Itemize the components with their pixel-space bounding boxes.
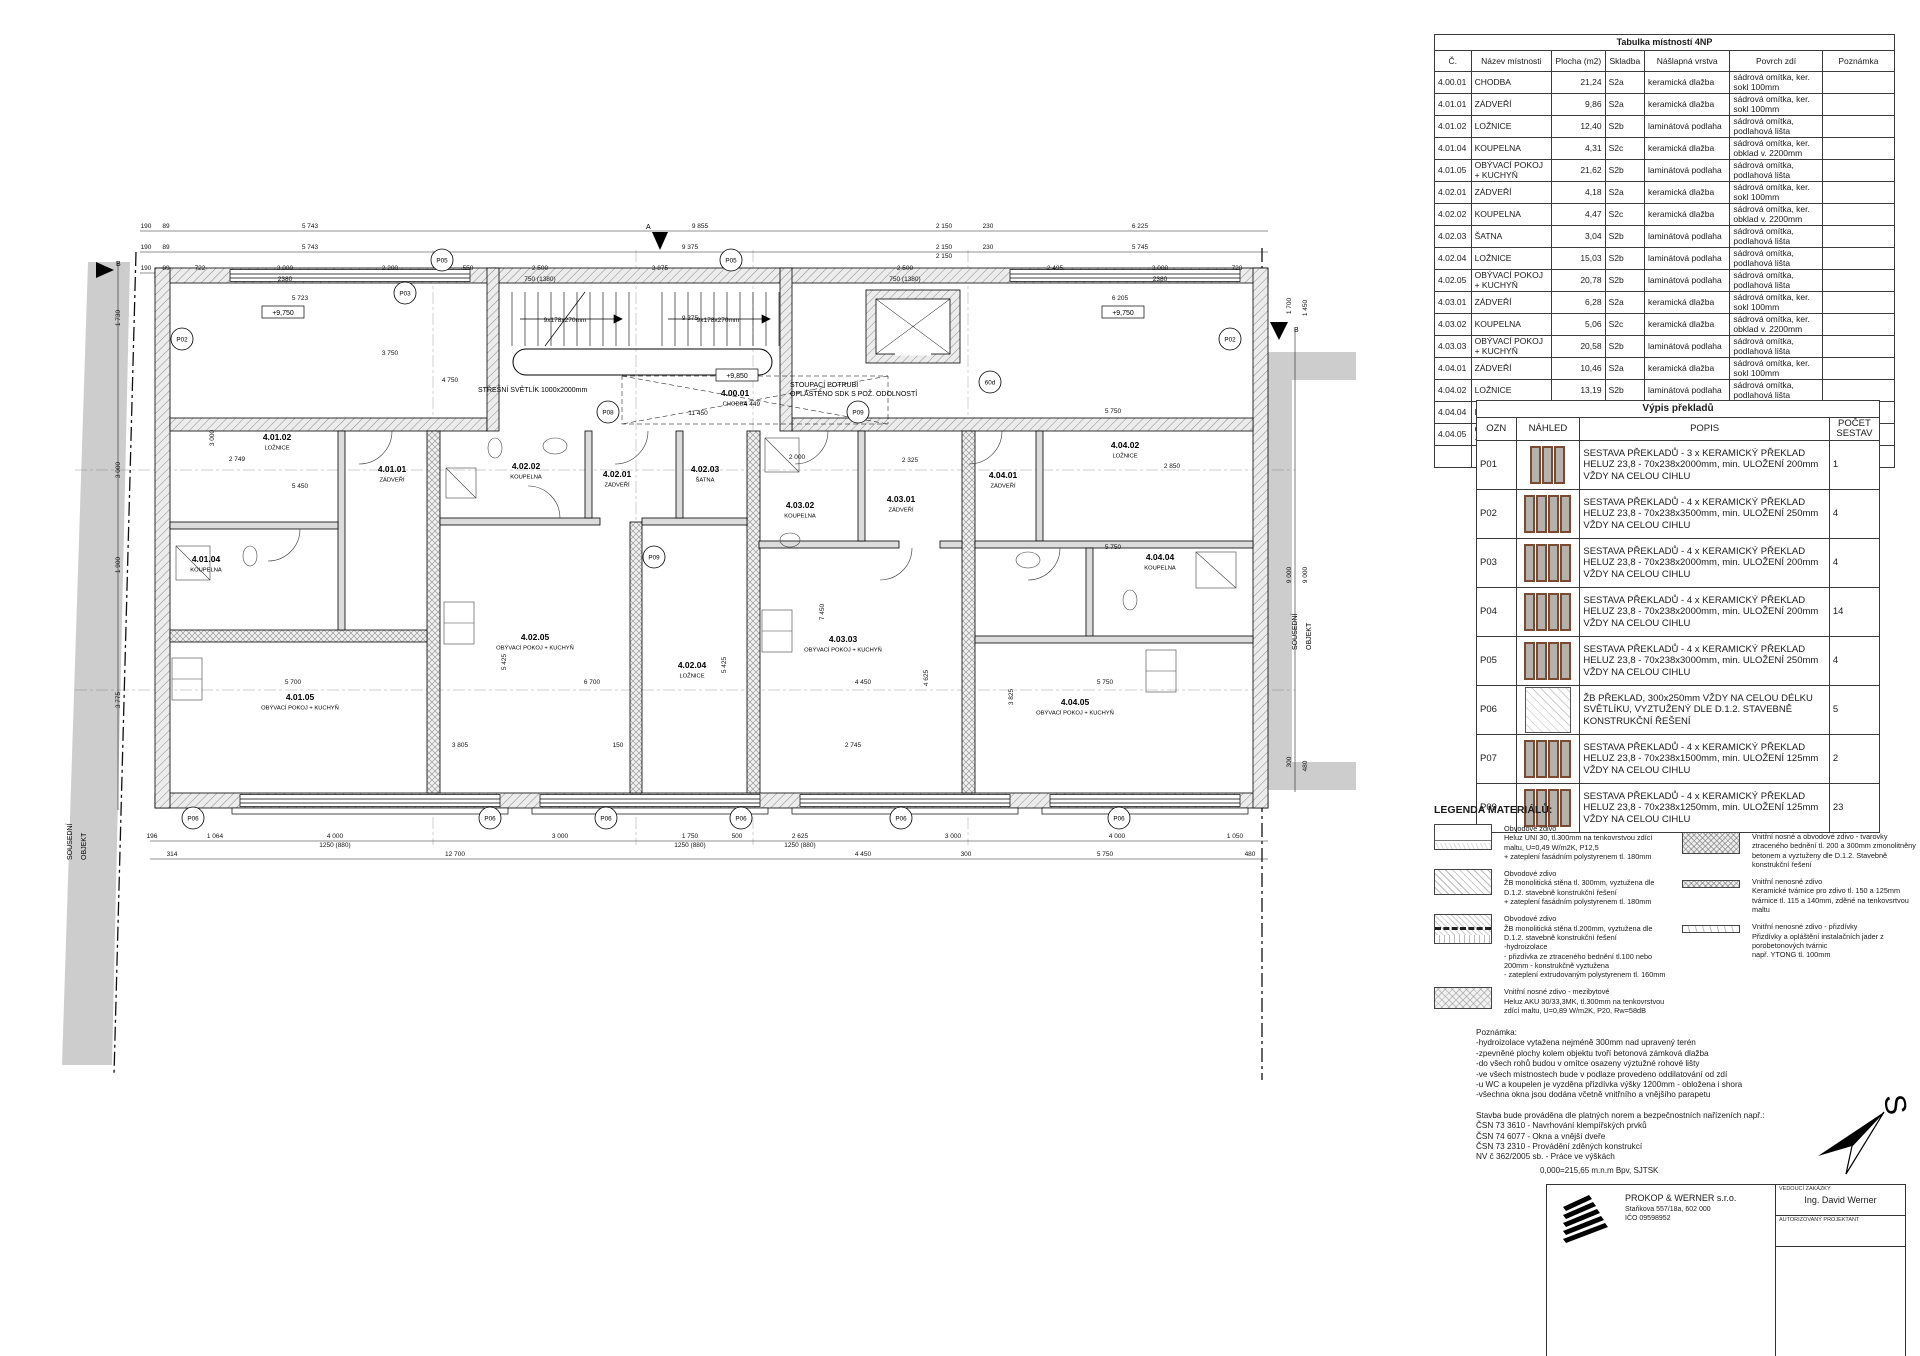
dim-label: 3 875	[652, 265, 669, 272]
lintel-thumbnail	[1520, 740, 1577, 778]
lintel-table-header-row: OZNNÁHLEDPOPISPOČET SESTAV	[1477, 418, 1880, 441]
lintel-bar	[1536, 740, 1547, 778]
column-header: POČET SESTAV	[1829, 418, 1879, 441]
room-number: 4.02.03	[691, 464, 720, 474]
table-cell	[1822, 204, 1894, 226]
table-cell: LOŽNICE	[1471, 380, 1551, 402]
svg-text:+9,750: +9,750	[272, 310, 294, 317]
annotation-text: A	[646, 224, 651, 231]
table-cell	[1435, 446, 1472, 468]
dim-label: 480	[1302, 760, 1309, 771]
lintel-position-marker: P09	[847, 401, 869, 423]
drawing-sheet: 4.00.01CHODBA4.01.01ZÁDVEŘÍ4.01.02LOŽNIC…	[0, 0, 1920, 1356]
column-header: Plocha (m2)	[1552, 51, 1606, 72]
legend-item-text: Vnitřní nenosné zdivo - přizdívky Přizdí…	[1752, 922, 1884, 959]
material-hatch-swatch	[1434, 987, 1492, 1009]
svg-text:60d: 60d	[985, 379, 996, 386]
room-number: 4.04.04	[1146, 552, 1175, 562]
table-cell	[1822, 72, 1894, 94]
room-label: 4.04.05OBÝVACÍ POKOJ + KUCHYŇ	[1036, 697, 1114, 717]
dim-label: 550	[463, 265, 474, 272]
lintel-position-marker: P06	[595, 807, 617, 829]
room-label: 4.02.04LOŽNICE	[678, 660, 707, 680]
dim-label: 5 450	[292, 483, 309, 490]
stair-tread-label: 9x178x270mm	[697, 317, 740, 324]
table-cell: S2c	[1605, 204, 1644, 226]
table-cell: 4.01.01	[1435, 94, 1472, 116]
table-cell: 4.02.04	[1435, 248, 1472, 270]
legend-swatch	[1434, 824, 1492, 861]
dim-label: 1 730	[115, 309, 122, 326]
lintel-count-cell: 2	[1829, 735, 1879, 784]
table-cell: keramická dlažba	[1645, 314, 1730, 336]
lintel-bar	[1524, 740, 1535, 778]
floor-plan-svg: 4.00.01CHODBA4.01.01ZÁDVEŘÍ4.01.02LOŽNIC…	[0, 0, 1435, 1356]
partition-walls	[170, 431, 1253, 643]
dim-label: 300	[961, 851, 972, 858]
dim-label: 2 745	[845, 742, 862, 749]
svg-text:P08: P08	[602, 409, 614, 416]
dim-label: 6 225	[1132, 223, 1149, 230]
table-cell: S2b	[1605, 336, 1644, 358]
table-cell: 13,19	[1552, 380, 1606, 402]
table-cell: laminátová podlaha	[1645, 270, 1730, 292]
legend-item: Obvodové zdivo ŽB monolitická stěna tl.2…	[1434, 914, 1686, 979]
title-block: PROKOP & WERNER s.r.o. Staňkova 557/18a,…	[1546, 1184, 1906, 1356]
svg-text:P09: P09	[648, 554, 660, 561]
column-header: POPIS	[1580, 418, 1829, 441]
table-cell: S2c	[1605, 314, 1644, 336]
room-label: 4.02.01ZÁDVEŘÍ	[603, 469, 632, 489]
notes-title: Poznámka:	[1476, 1028, 1920, 1038]
room-number: 4.04.05	[1061, 697, 1090, 707]
room-label: 4.04.04KOUPELNA	[1144, 552, 1176, 572]
lintel-bar	[1530, 446, 1541, 484]
table-cell	[1822, 116, 1894, 138]
table-cell: CHODBA	[1471, 72, 1551, 94]
lintel-bar	[1560, 544, 1571, 582]
table-cell: 10,46	[1552, 358, 1606, 380]
table-cell	[1822, 314, 1894, 336]
table-cell: sádrová omítka, ker. obklad v. 2200mm	[1730, 204, 1822, 226]
dim-label: 5 723	[292, 295, 309, 302]
dim-label: 4 625	[923, 669, 930, 686]
svg-text:P06: P06	[735, 815, 747, 822]
dim-label: 1 050	[1227, 833, 1244, 840]
dim-label: 11 450	[688, 410, 708, 417]
party-walls	[170, 431, 975, 793]
dim-label: 2 200	[382, 265, 399, 272]
neighbor-left-building	[62, 252, 136, 1075]
table-cell: LOŽNICE	[1471, 248, 1551, 270]
table-cell: 4,31	[1552, 138, 1606, 160]
table-cell: 9,86	[1552, 94, 1606, 116]
dim-label: 5 750	[1097, 851, 1114, 858]
room-label: 4.03.02KOUPELNA	[784, 500, 816, 520]
note-line: -do všech rohů budou v omítce osazeny vý…	[1476, 1059, 1920, 1069]
lintel-position-marker: P06	[730, 807, 752, 829]
svg-text:P03: P03	[399, 290, 411, 297]
room-number: 4.01.01	[378, 464, 407, 474]
lintel-bar	[1524, 642, 1535, 680]
table-cell: ŠATNA	[1471, 226, 1551, 248]
dim-label: 722	[195, 265, 206, 272]
role-row: VEDOUCÍ ZAKÁZKY Ing. David Werner	[1776, 1185, 1905, 1216]
table-cell: sádrová omítka, ker. sokl 100mm	[1730, 182, 1822, 204]
legend-item: Vnitřní nenosné zdivo - přizdívky Přizdí…	[1682, 922, 1920, 959]
neighbor-right-building	[1262, 248, 1356, 1080]
table-row: 4.02.01ZÁDVEŘÍ4,18S2akeramická dlažbasád…	[1435, 182, 1895, 204]
lintel-thumb-cell	[1516, 637, 1580, 686]
column-header: Nášlapná vrstva	[1645, 51, 1730, 72]
material-hatch-swatch	[1434, 914, 1492, 944]
lintel-mark-cell: P07	[1477, 735, 1517, 784]
dim-label: 1250 (880)	[784, 842, 815, 849]
legend-item-text: Vnitřní nenosné zdivo Keramické tvárnice…	[1752, 877, 1909, 914]
table-cell: laminátová podlaha	[1645, 160, 1730, 182]
table-cell: keramická dlažba	[1645, 138, 1730, 160]
column-header: NÁHLED	[1516, 418, 1580, 441]
dim-label: 1 064	[207, 833, 224, 840]
table-cell: 4.03.01	[1435, 292, 1472, 314]
table-cell: 20,58	[1552, 336, 1606, 358]
table-cell: 4,47	[1552, 204, 1606, 226]
lintel-thumb-cell	[1516, 735, 1580, 784]
lintel-mark-cell: P02	[1477, 490, 1517, 539]
legend-item: Obvodové zdivo Heluz UNI 30, tl.300mm na…	[1434, 824, 1686, 861]
dim-label: 6 700	[584, 679, 601, 686]
dim-label: 9 000	[1302, 566, 1309, 583]
table-cell: sádrová omítka, podlahová lišta	[1730, 248, 1822, 270]
dim-label: 5 750	[1105, 544, 1122, 551]
table-cell: 4.03.02	[1435, 314, 1472, 336]
annotation-text: B	[116, 261, 121, 268]
table-cell: S2a	[1605, 292, 1644, 314]
room-number: 4.04.01	[989, 470, 1018, 480]
table-row: 4.02.03ŠATNA3,04S2blaminátová podlahasád…	[1435, 226, 1895, 248]
legend-item-text: Obvodové zdivo Heluz UNI 30, tl.300mm na…	[1504, 824, 1652, 861]
dim-label: 3 000	[552, 833, 569, 840]
room-label: 4.03.03OBÝVACÍ POKOJ + KUCHYŇ	[804, 634, 882, 654]
table-cell: 12,40	[1552, 116, 1606, 138]
dim-label: 2 150	[936, 244, 953, 251]
dim-label: 2 850	[1164, 463, 1181, 470]
lintel-thumbnail	[1520, 687, 1577, 733]
lintel-count-cell: 14	[1829, 588, 1879, 637]
dim-label: 3 000	[277, 265, 294, 272]
legend-swatch	[1682, 877, 1740, 914]
table-cell: keramická dlažba	[1645, 292, 1730, 314]
dim-label: 5 745	[1132, 244, 1149, 251]
room-name: ZÁDVEŘÍ	[604, 481, 630, 489]
table-cell: 4.01.05	[1435, 160, 1472, 182]
dim-label: 3 000	[1152, 265, 1169, 272]
table-cell: keramická dlažba	[1645, 182, 1730, 204]
table-cell	[1822, 138, 1894, 160]
room-label: 4.01.05OBÝVACÍ POKOJ + KUCHYŇ	[261, 692, 339, 712]
dim-label: 3 000	[945, 833, 962, 840]
room-label: 4.01.02LOŽNICE	[263, 432, 292, 452]
dim-label: 3 825	[1008, 688, 1015, 705]
dim-label: 5 743	[302, 244, 319, 251]
dim-label: 3 775	[115, 691, 122, 708]
table-row: 4.02.02KOUPELNA4,47S2ckeramická dlažbasá…	[1435, 204, 1895, 226]
dim-label: 750 (1380)	[524, 276, 555, 283]
dim-label: 2 000	[789, 454, 806, 461]
annotation-text: OPLÁŠTĚNO SDK S POŽ. ODOLNOSTÍ	[790, 389, 917, 398]
note-line: -hydroizolace vytažena nejméně 300mm nad…	[1476, 1038, 1920, 1048]
table-cell: sádrová omítka, ker. sokl 100mm	[1730, 358, 1822, 380]
room-label: 4.04.01ZÁDVEŘÍ	[989, 470, 1018, 490]
table-cell: S2c	[1605, 138, 1644, 160]
room-name: OBÝVACÍ POKOJ + KUCHYŇ	[496, 645, 574, 652]
dim-label: 190	[141, 223, 152, 230]
dim-label: 5 700	[285, 679, 302, 686]
table-row: 4.03.01ZÁDVEŘÍ6,28S2akeramická dlažbasád…	[1435, 292, 1895, 314]
svg-text:P02: P02	[176, 336, 188, 343]
dim-label: 230	[983, 244, 994, 251]
table-cell	[1822, 182, 1894, 204]
room-number: 4.03.02	[786, 500, 815, 510]
zb-lintel-hatch	[1525, 687, 1571, 733]
dim-label: 9 855	[692, 223, 709, 230]
dim-label: 196	[147, 833, 158, 840]
table-cell	[1822, 270, 1894, 292]
column-header: Č.	[1435, 51, 1472, 72]
lintel-row: P05SESTAVA PŘEKLADŮ - 4 x KERAMICKÝ PŘEK…	[1477, 637, 1880, 686]
table-cell: S2a	[1605, 72, 1644, 94]
table-cell: laminátová podlaha	[1645, 336, 1730, 358]
dim-label: 4 000	[327, 833, 344, 840]
room-number: 4.03.01	[887, 494, 916, 504]
legend-item: Vnitřní nosné a obvodové zdivo - tvarovk…	[1682, 832, 1920, 869]
svg-text:+9,850: +9,850	[726, 373, 748, 380]
room-label: 4.02.02KOUPELNA	[510, 461, 542, 481]
table-cell: KOUPELNA	[1471, 138, 1551, 160]
table-cell: 4.02.02	[1435, 204, 1472, 226]
table-cell: sádrová omítka, ker. obklad v. 2200mm	[1730, 314, 1822, 336]
table-cell: KOUPELNA	[1471, 204, 1551, 226]
room-label: 4.02.05OBÝVACÍ POKOJ + KUCHYŇ	[496, 632, 574, 652]
table-cell	[1822, 94, 1894, 116]
dim-label: 3 000	[115, 461, 122, 478]
lintel-bar	[1548, 593, 1559, 631]
table-cell: 6,28	[1552, 292, 1606, 314]
table-cell: S2b	[1605, 248, 1644, 270]
table-row: 4.03.02KOUPELNA5,06S2ckeramická dlažbasá…	[1435, 314, 1895, 336]
neighbor-object-label: OBJEKT	[81, 832, 88, 860]
table-cell: sádrová omítka, podlahová lišta	[1730, 336, 1822, 358]
table-cell: sádrová omítka, ker. sokl 100mm	[1730, 94, 1822, 116]
table-cell: 4.03.03	[1435, 336, 1472, 358]
dim-label: 314	[167, 851, 178, 858]
dim-label: 2 325	[902, 457, 919, 464]
lintel-bar	[1548, 642, 1559, 680]
dim-label: 5 425	[721, 656, 728, 673]
table-row: 4.01.05OBÝVACÍ POKOJ + KUCHYŇ21,62S2blam…	[1435, 160, 1895, 182]
table-cell: 21,62	[1552, 160, 1606, 182]
table-row: 4.02.05OBÝVACÍ POKOJ + KUCHYŇ20,78S2blam…	[1435, 270, 1895, 292]
dim-label: 300	[1286, 756, 1293, 767]
svg-text:P06: P06	[187, 815, 199, 822]
lintel-position-marker: P08	[597, 401, 619, 423]
lintel-description-cell: SESTAVA PŘEKLADŮ - 3 x KERAMICKÝ PŘEKLAD…	[1580, 441, 1829, 490]
title-block-roles: VEDOUCÍ ZAKÁZKY Ing. David Werner AUTORI…	[1775, 1185, 1905, 1356]
column-header: OZN	[1477, 418, 1517, 441]
dim-label: 500	[732, 833, 743, 840]
svg-text:P06: P06	[1113, 815, 1125, 822]
lintel-position-marker: P02	[171, 328, 193, 350]
table-row: 4.01.04KOUPELNA4,31S2ckeramická dlažbasá…	[1435, 138, 1895, 160]
table-cell: 3,04	[1552, 226, 1606, 248]
table-cell: OBÝVACÍ POKOJ + KUCHYŇ	[1471, 270, 1551, 292]
lintel-count-cell: 4	[1829, 490, 1879, 539]
lintel-thumbnail	[1520, 495, 1577, 533]
room-name: ŠATNA	[696, 477, 715, 484]
column-header: Název místnosti	[1471, 51, 1551, 72]
dim-label: 2 150	[936, 223, 953, 230]
svg-text:P06: P06	[895, 815, 907, 822]
lintel-bar	[1560, 495, 1571, 533]
lintel-mark-cell: P06	[1477, 686, 1517, 735]
legend-title: LEGENDA MATERIÁLŮ:	[1434, 804, 1920, 816]
dim-label: 190	[141, 265, 152, 272]
table-cell: keramická dlažba	[1645, 358, 1730, 380]
lintel-bar	[1548, 495, 1559, 533]
table-cell	[1822, 380, 1894, 402]
lintel-bar	[1524, 593, 1535, 631]
lintel-bar	[1524, 495, 1535, 533]
elevation-label: +9,850	[716, 369, 758, 381]
lintel-position-marker: P06	[479, 807, 501, 829]
room-number: 4.01.05	[286, 692, 315, 702]
table-cell	[1822, 336, 1894, 358]
room-number: 4.02.04	[678, 660, 707, 670]
role-label: AUTORIZOVANÝ PROJEKTANT	[1779, 1217, 1902, 1223]
dim-label: 1 450	[1302, 299, 1309, 316]
lintel-row: P03SESTAVA PŘEKLADŮ - 4 x KERAMICKÝ PŘEK…	[1477, 539, 1880, 588]
room-name: LOŽNICE	[264, 444, 289, 452]
lintel-mark-cell: P03	[1477, 539, 1517, 588]
table-cell: 4.00.01	[1435, 72, 1472, 94]
material-hatch-swatch	[1434, 869, 1492, 895]
lintel-mark-cell: P05	[1477, 637, 1517, 686]
annotation-text: STOUPACÍ POTRUBÍ	[790, 380, 858, 389]
room-label: 4.02.03ŠATNA	[691, 464, 720, 484]
lintel-thumb-cell	[1516, 686, 1580, 735]
table-cell: keramická dlažba	[1645, 94, 1730, 116]
table-cell: ZÁDVEŘÍ	[1471, 94, 1551, 116]
svg-text:P02: P02	[1224, 336, 1236, 343]
lintel-row: P01SESTAVA PŘEKLADŮ - 3 x KERAMICKÝ PŘEK…	[1477, 441, 1880, 490]
dim-label: 150	[613, 742, 624, 749]
role-name: Ing. David Werner	[1779, 1195, 1902, 1205]
svg-text:P09: P09	[852, 409, 864, 416]
table-cell: sádrová omítka, ker. obklad v. 2200mm	[1730, 138, 1822, 160]
room-name: ZÁDVEŘÍ	[990, 482, 1016, 490]
dim-label: 4 449	[744, 401, 761, 408]
lintel-bar	[1548, 544, 1559, 582]
dim-label: 750 (1380)	[889, 276, 920, 283]
room-number: 4.01.04	[192, 554, 221, 564]
legend-swatch	[1434, 869, 1492, 906]
dim-label: 1 700	[1286, 297, 1293, 314]
room-name: ZÁDVEŘÍ	[379, 476, 405, 484]
annotation-text: B	[1294, 327, 1299, 334]
room-name: OBÝVACÍ POKOJ + KUCHYŇ	[1036, 710, 1114, 717]
room-number: 4.02.05	[521, 632, 550, 642]
svg-text:P05: P05	[725, 257, 737, 264]
table-cell: sádrová omítka, podlahová lišta	[1730, 160, 1822, 182]
table-cell: sádrová omítka, podlahová lišta	[1730, 380, 1822, 402]
table-cell: 15,03	[1552, 248, 1606, 270]
note-line: -zpevněné plochy kolem objektu tvoří bet…	[1476, 1049, 1920, 1059]
table-cell: 4.02.03	[1435, 226, 1472, 248]
table-cell: laminátová podlaha	[1645, 116, 1730, 138]
company-info: PROKOP & WERNER s.r.o. Staňkova 557/18a,…	[1625, 1185, 1775, 1356]
dim-label: 2 500	[897, 265, 914, 272]
lintel-description-cell: SESTAVA PŘEKLADŮ - 4 x KERAMICKÝ PŘEKLAD…	[1580, 588, 1829, 637]
table-cell: 4.04.02	[1435, 380, 1472, 402]
lintel-bar	[1548, 740, 1559, 778]
room-number: 4.03.03	[829, 634, 858, 644]
room-number: 4.00.01	[721, 388, 750, 398]
room-name: KOUPELNA	[510, 475, 542, 481]
table-cell: ZÁDVEŘÍ	[1471, 358, 1551, 380]
room-table-header-row: Č.Název místnostiPlocha (m2)SkladbaNášla…	[1435, 51, 1895, 72]
table-row: 4.04.02LOŽNICE13,19S2blaminátová podlaha…	[1435, 380, 1895, 402]
lintel-position-marker: P09	[643, 546, 665, 568]
table-cell: S2a	[1605, 182, 1644, 204]
lintel-row: P07SESTAVA PŘEKLADŮ - 4 x KERAMICKÝ PŘEK…	[1477, 735, 1880, 784]
room-name: KOUPELNA	[1144, 566, 1176, 572]
room-table-title: Tabulka místností 4NP	[1435, 35, 1895, 51]
dim-label: 5 425	[501, 653, 508, 670]
lintel-bar	[1560, 642, 1571, 680]
table-cell: sádrová omítka, podlahová lišta	[1730, 226, 1822, 248]
dim-label: 5 743	[302, 223, 319, 230]
column-header: Skladba	[1605, 51, 1644, 72]
dim-label: 3 750	[382, 350, 399, 357]
table-cell: laminátová podlaha	[1645, 226, 1730, 248]
lintel-count-cell: 4	[1829, 539, 1879, 588]
lintel-thumbnail	[1520, 593, 1577, 631]
table-cell: S2b	[1605, 226, 1644, 248]
room-name: LOŽNICE	[1112, 452, 1137, 460]
table-cell: S2a	[1605, 358, 1644, 380]
table-row: 4.01.02LOŽNICE12,40S2blaminátová podlaha…	[1435, 116, 1895, 138]
lintel-bar	[1536, 495, 1547, 533]
table-row: 4.04.01ZÁDVEŘÍ10,46S2akeramická dlažbasá…	[1435, 358, 1895, 380]
column-header: Poznámka	[1822, 51, 1894, 72]
lintel-bar	[1542, 446, 1553, 484]
dim-label: 2380	[1153, 276, 1168, 283]
table-cell: LOŽNICE	[1471, 116, 1551, 138]
dim-label: 1250 (880)	[674, 842, 705, 849]
material-hatch-swatch	[1434, 824, 1492, 850]
lintel-position-marker: P02	[1219, 328, 1241, 350]
room-name: KOUPELNA	[784, 514, 816, 520]
dim-label: 1 900	[115, 556, 122, 573]
room-label: 4.01.04KOUPELNA	[190, 554, 222, 574]
table-cell	[1822, 160, 1894, 182]
neighbor-object-label: SOUSEDNÍ	[65, 823, 74, 860]
table-cell: 4.01.04	[1435, 138, 1472, 160]
table-row: 4.03.03OBÝVACÍ POKOJ + KUCHYŇ20,58S2blam…	[1435, 336, 1895, 358]
lintel-position-marker: P05	[720, 249, 742, 271]
lintel-thumb-cell	[1516, 588, 1580, 637]
svg-text:P05: P05	[436, 257, 448, 264]
